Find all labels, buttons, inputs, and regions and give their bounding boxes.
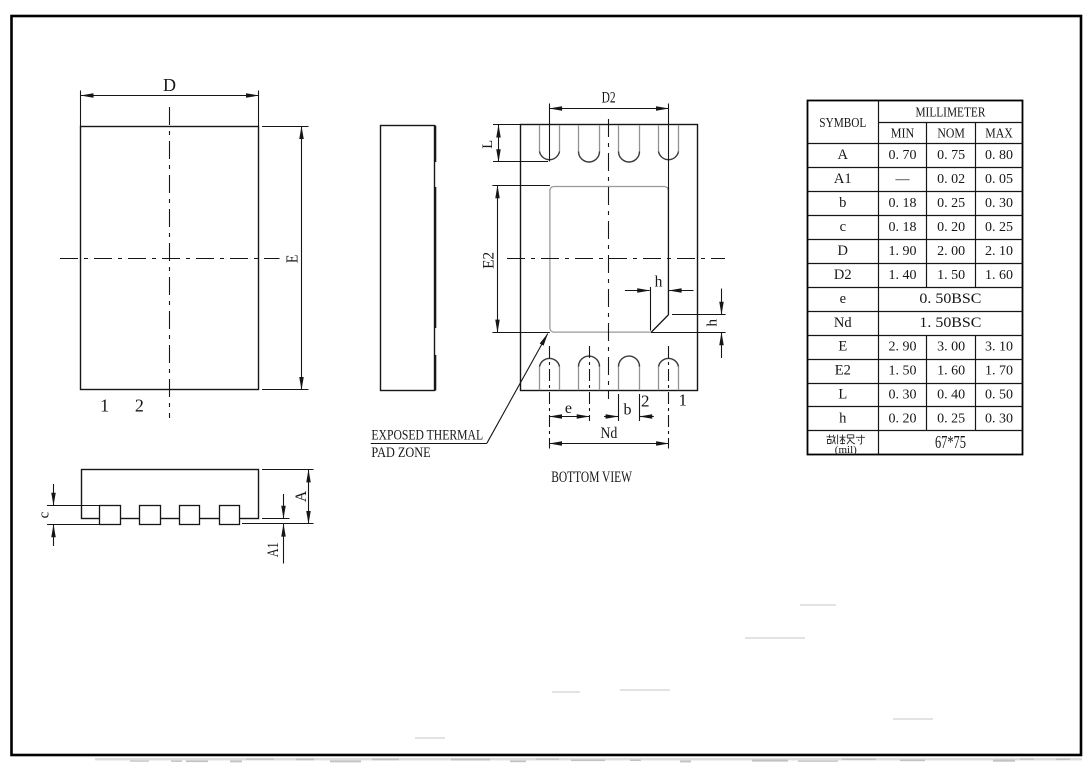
svg-text:0. 02: 0. 02 [937,172,965,187]
svg-text:0. 25: 0. 25 [937,412,965,427]
svg-text:0. 05: 0. 05 [985,172,1013,187]
svg-text:0. 70: 0. 70 [889,148,917,163]
svg-text:1: 1 [100,396,109,416]
svg-text:1. 70: 1. 70 [985,364,1013,379]
svg-text:A: A [838,147,849,163]
svg-text:0. 30: 0. 30 [985,412,1013,427]
svg-text:—: — [895,172,911,187]
svg-text:0. 80: 0. 80 [985,148,1013,163]
svg-text:L: L [838,387,847,403]
svg-text:0. 40: 0. 40 [937,388,965,403]
svg-text:e: e [565,400,572,417]
svg-text:BOTTOM VIEW: BOTTOM VIEW [551,469,632,486]
svg-text:1. 90: 1. 90 [889,244,917,259]
svg-text:(mil): (mil) [835,445,858,456]
svg-text:E2: E2 [835,363,851,379]
svg-text:2: 2 [135,396,144,416]
svg-text:3. 10: 3. 10 [985,340,1013,355]
svg-text:b: b [624,402,632,419]
svg-text:D2: D2 [602,89,616,106]
svg-text:2. 10: 2. 10 [985,244,1013,259]
svg-text:67*75: 67*75 [935,432,966,452]
svg-text:1. 50: 1. 50 [937,268,965,283]
svg-text:NOM: NOM [937,126,965,141]
svg-text:2: 2 [641,391,650,410]
svg-text:0. 25: 0. 25 [937,196,965,211]
svg-text:Nd: Nd [834,315,852,331]
svg-text:A1: A1 [265,542,282,557]
svg-text:h: h [704,319,720,327]
svg-text:0. 50BSC: 0. 50BSC [919,291,981,307]
svg-text:1. 50BSC: 1. 50BSC [919,315,981,331]
svg-text:h: h [655,273,663,290]
svg-text:D: D [163,75,176,95]
svg-text:1. 60: 1. 60 [937,364,965,379]
svg-text:0. 50: 0. 50 [985,388,1013,403]
svg-text:SYMBOL: SYMBOL [819,115,866,130]
svg-text:2. 90: 2. 90 [889,340,917,355]
svg-text:c: c [36,511,52,518]
svg-text:E2: E2 [480,252,497,269]
svg-text:EXPOSED THERMAL: EXPOSED THERMAL [371,428,483,444]
svg-text:A1: A1 [834,171,852,187]
svg-text:0. 75: 0. 75 [937,148,965,163]
svg-text:D2: D2 [834,267,852,283]
svg-text:A: A [293,490,310,502]
svg-text:MILLIMETER: MILLIMETER [915,104,985,119]
svg-text:0. 25: 0. 25 [985,220,1013,235]
svg-text:1: 1 [678,391,687,410]
svg-text:2. 00: 2. 00 [937,244,965,259]
svg-text:b: b [839,195,846,211]
svg-text:0. 18: 0. 18 [889,196,917,211]
svg-text:L: L [480,140,496,149]
svg-text:0. 20: 0. 20 [889,412,917,427]
svg-text:0. 30: 0. 30 [985,196,1013,211]
svg-text:Nd: Nd [600,425,617,442]
svg-text:h: h [839,411,847,427]
svg-text:MAX: MAX [985,126,1013,141]
svg-text:0. 20: 0. 20 [937,220,965,235]
svg-text:PAD ZONE: PAD ZONE [371,445,430,461]
svg-text:1. 60: 1. 60 [985,268,1013,283]
svg-text:E: E [282,255,301,264]
svg-text:e: e [840,291,846,307]
svg-text:1. 50: 1. 50 [889,364,917,379]
svg-text:0. 18: 0. 18 [889,220,917,235]
svg-text:3. 00: 3. 00 [937,340,965,355]
svg-text:0. 30: 0. 30 [889,388,917,403]
svg-text:1. 40: 1. 40 [889,268,917,283]
svg-text:D: D [838,243,848,259]
svg-text:c: c [840,219,846,235]
svg-text:E: E [838,339,847,355]
svg-text:MIN: MIN [891,126,915,141]
